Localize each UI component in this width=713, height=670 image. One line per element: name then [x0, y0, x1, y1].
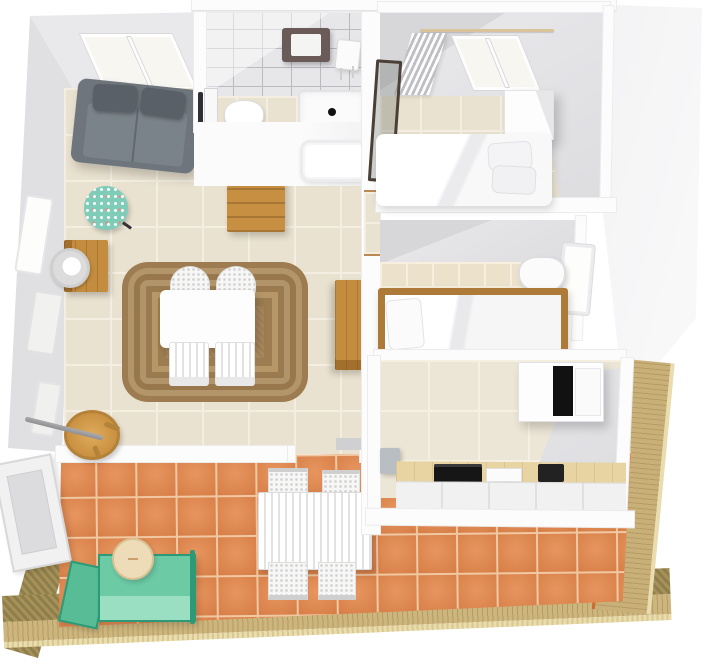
sofa[interactable] [70, 78, 202, 176]
table-center-mark [128, 558, 138, 560]
bedroom1-wall-top [378, 2, 610, 12]
patio-chair-3[interactable] [268, 562, 308, 600]
wicker-chair-4[interactable] [215, 342, 255, 386]
terrace-door-jamb-left [288, 446, 295, 462]
washbasin[interactable] [334, 39, 361, 71]
table-fan-icon[interactable] [50, 248, 90, 288]
window-divider [127, 37, 152, 87]
fridge-door-panel [575, 368, 601, 416]
floor-plan-render [0, 0, 713, 670]
mirror-cabinet[interactable] [282, 28, 330, 62]
terrace-door-step [336, 438, 362, 450]
fridge-freezer[interactable] [518, 362, 604, 422]
mirror-glass [291, 34, 321, 56]
lounger-seat-light [100, 596, 194, 620]
double-bed[interactable] [376, 134, 552, 206]
white-cabinet[interactable] [504, 90, 554, 140]
shower-drain [328, 108, 336, 116]
washbasin-leg [340, 68, 342, 80]
bathtub[interactable] [300, 140, 368, 182]
lounger-leg [190, 550, 195, 624]
wicker-chair-3[interactable] [169, 342, 209, 386]
door-panel-inset [7, 469, 58, 554]
patio-table[interactable] [258, 492, 372, 570]
chest-of-drawers[interactable] [227, 178, 285, 232]
kitchen-wall-bottom [366, 509, 634, 528]
bed-pillow-2 [491, 165, 536, 195]
toilet-brush[interactable] [198, 92, 203, 126]
bedroom-1 [370, 0, 616, 214]
cooktop[interactable] [538, 464, 564, 482]
sofa-cushion-left [92, 84, 137, 113]
bathroom [194, 4, 376, 186]
fridge-door-gap [553, 366, 573, 416]
kitchen-wall-left [368, 356, 380, 520]
curtain-rod[interactable] [420, 29, 554, 32]
window-divider [486, 39, 508, 87]
counter-tray [486, 468, 522, 482]
bedroom1-wall-right [600, 6, 613, 206]
washbasin-leg-2 [352, 66, 354, 78]
bedroom-2 [370, 212, 620, 364]
kitchen [366, 350, 666, 540]
patio-chair-4[interactable] [318, 562, 356, 600]
bed-pillow [385, 298, 425, 351]
patio-side-table[interactable] [112, 538, 154, 580]
dining-table[interactable] [160, 290, 255, 348]
